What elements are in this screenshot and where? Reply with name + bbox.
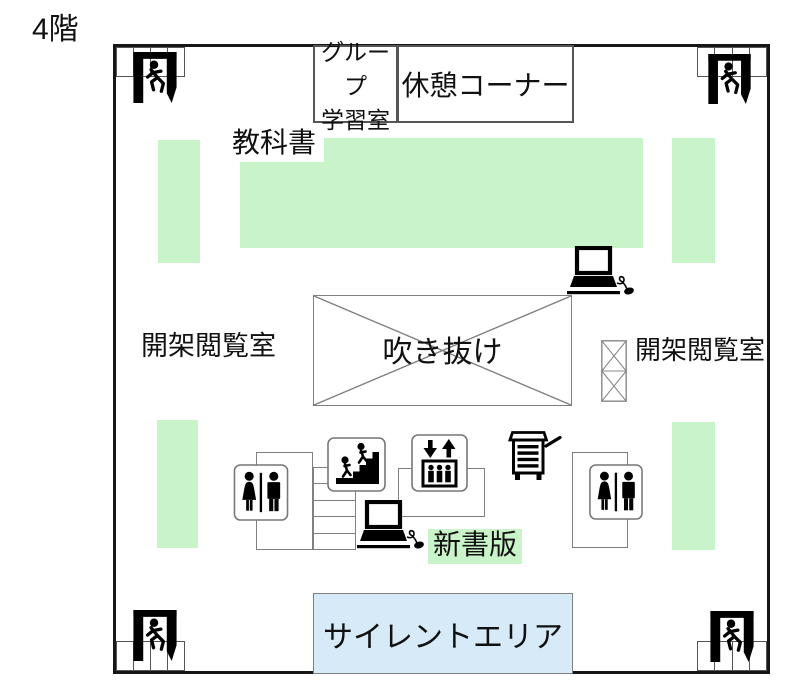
room-group-study-label: グループ学習室 <box>315 33 396 135</box>
stairs-icon <box>327 437 386 492</box>
label-atrium: 吹き抜け <box>314 327 571 371</box>
bookshelf-area-bottom-left <box>157 420 198 548</box>
label-silent-area: サイレントエリア <box>323 612 563 656</box>
page-title: 4階 <box>32 4 79 48</box>
toilet-icon <box>589 462 643 522</box>
bookshelf-area-top-right <box>672 138 715 263</box>
bookshelf-area-top-left <box>158 140 200 263</box>
atrium-void: 吹き抜け <box>313 295 572 406</box>
book-cart-icon <box>504 428 562 483</box>
floor-map-4f: 4階 グループ学習室 休憩コーナー 教科書 開架閲覧室 開架閲覧室 吹き抜け <box>0 0 800 691</box>
label-reading-room-right: 開架閲覧室 <box>635 336 765 366</box>
label-paperback: 新書版 <box>428 529 522 564</box>
label-reading-room-left: 開架閲覧室 <box>141 331 276 362</box>
toilet-icon <box>233 464 289 521</box>
silent-area: サイレントエリア <box>313 593 573 674</box>
emergency-exit-icon <box>133 610 177 661</box>
emergency-exit-icon <box>707 54 752 104</box>
bookshelf-area-bottom-right <box>672 422 715 550</box>
emergency-exit-icon <box>710 611 754 662</box>
room-group-study: グループ学習室 <box>313 45 398 123</box>
laptop-icon <box>566 246 638 298</box>
elevator-icon <box>411 434 468 492</box>
hatched-shaft-icon <box>601 340 627 402</box>
room-rest-corner-label: 休憩コーナー <box>401 64 569 104</box>
emergency-exit-icon <box>133 52 177 103</box>
label-textbook: 教科書 <box>228 126 324 162</box>
laptop-icon <box>356 500 428 552</box>
room-rest-corner: 休憩コーナー <box>397 45 574 123</box>
